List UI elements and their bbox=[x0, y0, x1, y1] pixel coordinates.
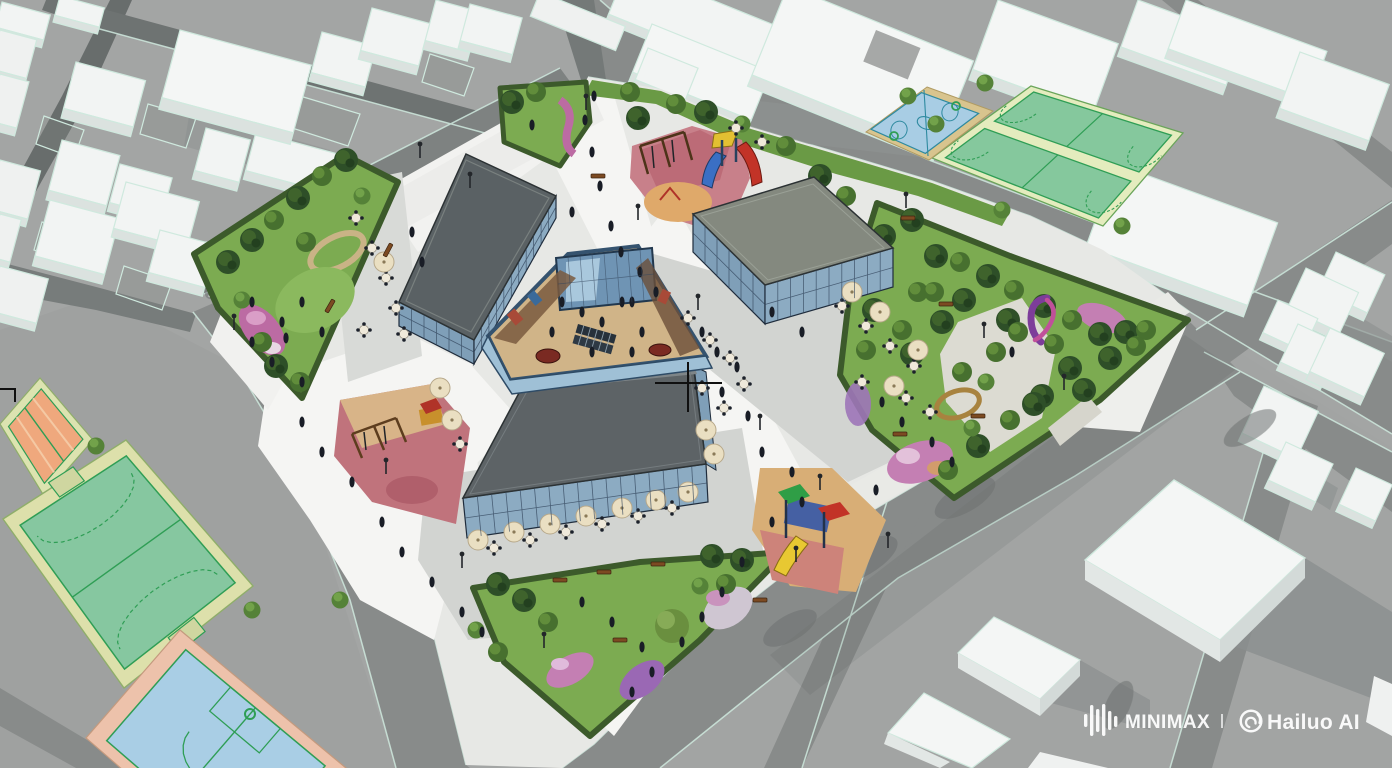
svg-text:MINIMAX: MINIMAX bbox=[1125, 712, 1210, 733]
svg-text:Hailuo AI: Hailuo AI bbox=[1267, 711, 1360, 734]
